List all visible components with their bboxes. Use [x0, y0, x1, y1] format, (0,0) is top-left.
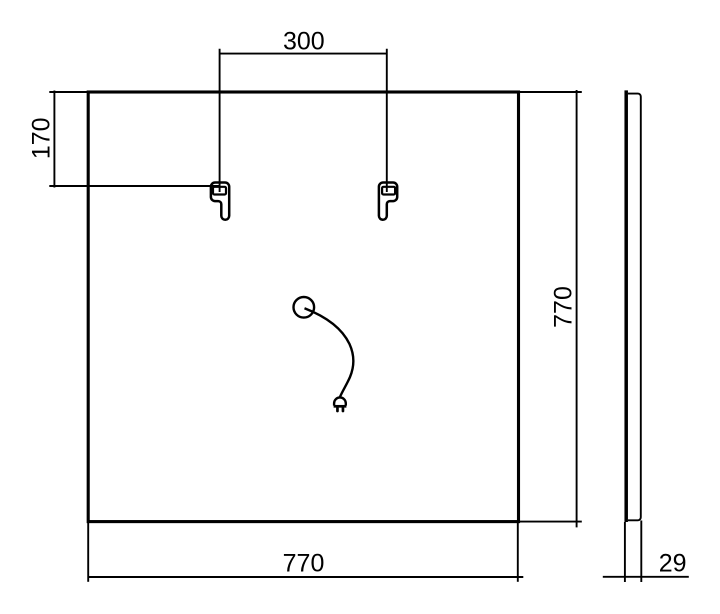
svg-text:770: 770: [550, 286, 578, 328]
svg-text:300: 300: [283, 28, 325, 56]
svg-text:170: 170: [28, 117, 56, 159]
svg-text:770: 770: [283, 549, 325, 577]
svg-text:29: 29: [659, 549, 687, 577]
